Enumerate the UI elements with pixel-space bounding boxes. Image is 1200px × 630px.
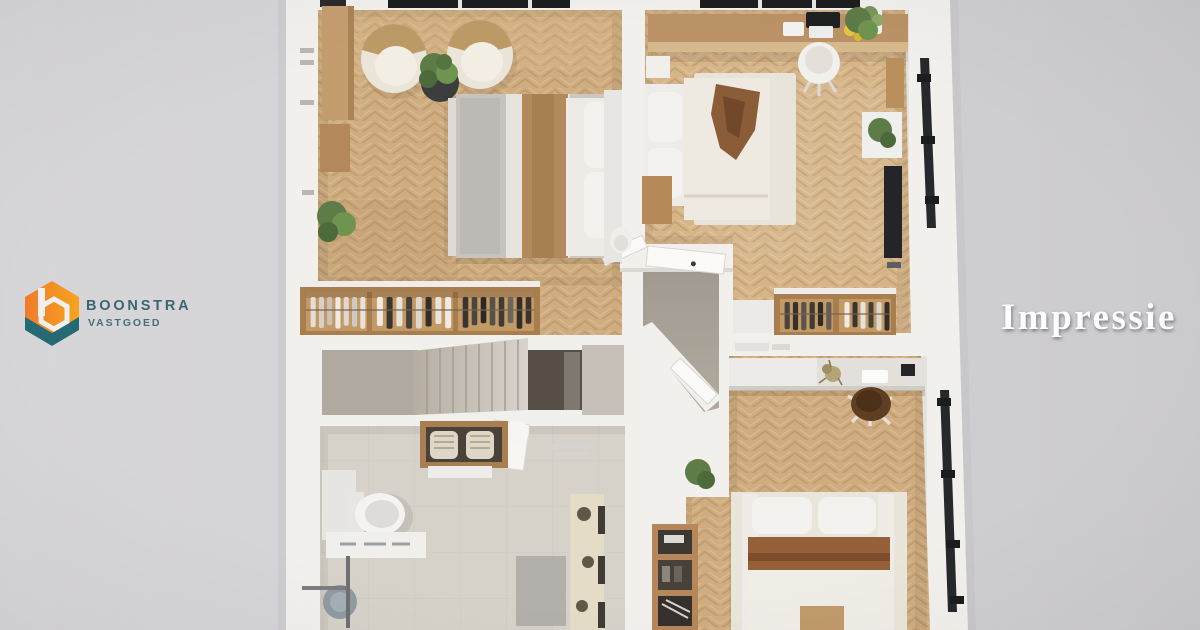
svg-text:BOONSTRA: BOONSTRA: [86, 298, 191, 314]
svg-text:Impressie: Impressie: [1001, 297, 1177, 338]
svg-text:VASTGOED: VASTGOED: [88, 317, 161, 329]
